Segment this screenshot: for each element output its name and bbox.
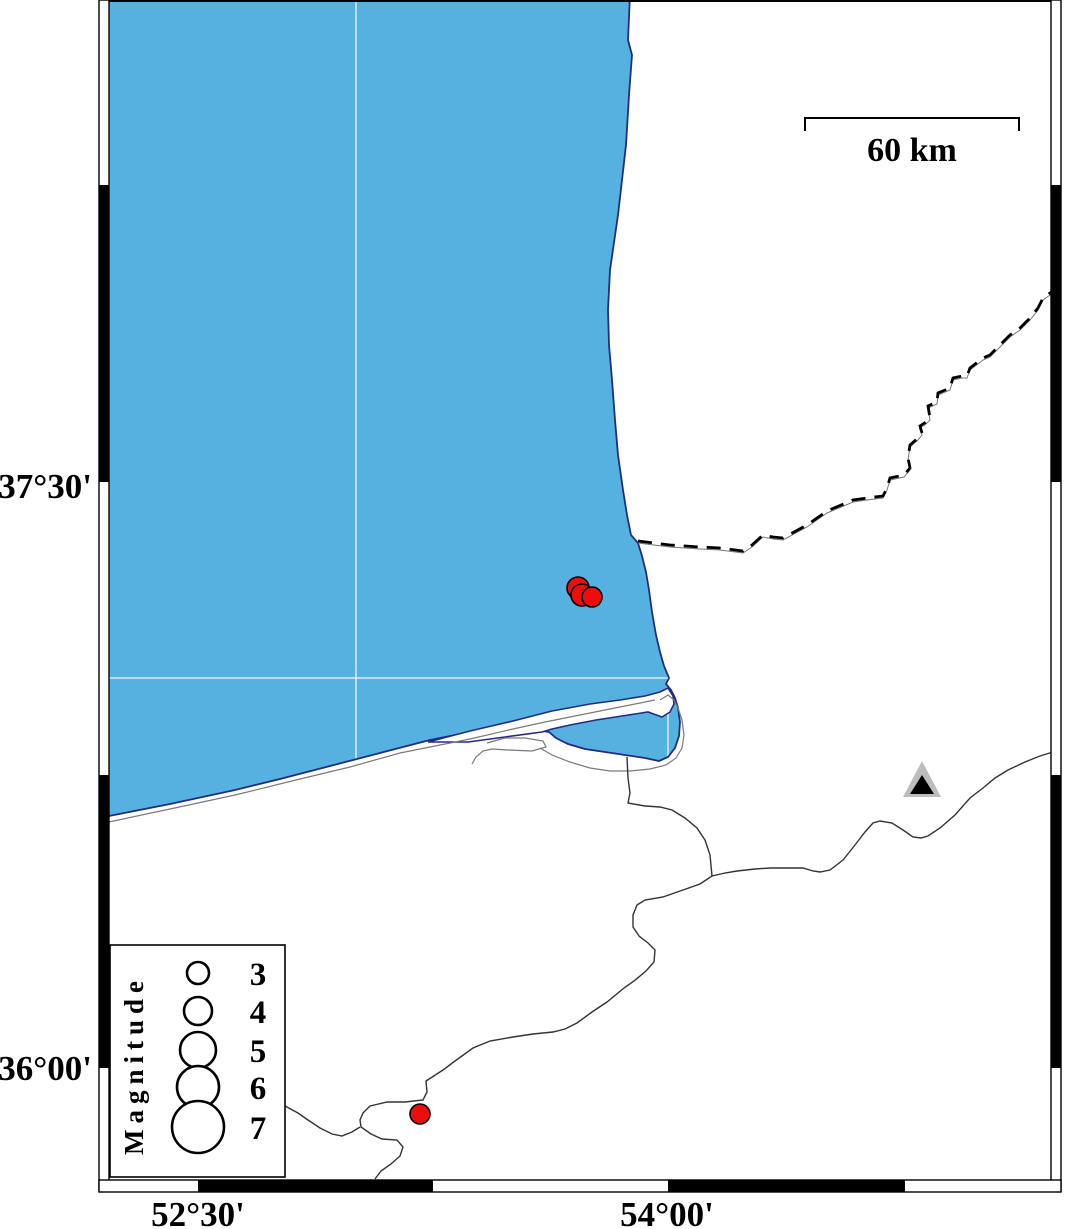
latitude-tick-label: 36°00' — [0, 1049, 92, 1088]
seismicity-map-page: 60 km Magnitude 34567 37°30'36°00' 52°30… — [0, 0, 1066, 1229]
legend-circle — [187, 962, 209, 984]
river-west-branch — [285, 1106, 360, 1136]
legend-magnitude-label: 6 — [250, 1071, 267, 1107]
sea-layer — [109, 0, 680, 816]
river-east-branch — [712, 752, 1053, 876]
magnitude-legend: Magnitude 34567 — [110, 945, 285, 1177]
legend-magnitude-label: 7 — [250, 1111, 267, 1147]
sea-polygon — [109, 0, 680, 816]
longitude-labels: 52°30'54°00' — [151, 1195, 714, 1229]
legend-magnitude-label: 5 — [250, 1034, 267, 1070]
epicenter-dot — [582, 587, 602, 607]
legend-circle — [184, 997, 212, 1025]
latitude-labels: 37°30'36°00' — [0, 467, 92, 1088]
border-line — [638, 289, 1058, 553]
rivers — [285, 752, 1053, 1179]
legend-circle — [180, 1032, 216, 1068]
legend-magnitude-label: 4 — [250, 995, 267, 1031]
epicenter-dot — [410, 1104, 430, 1124]
longitude-tick-label: 52°30' — [151, 1195, 245, 1229]
border-solid-underline — [638, 291, 1058, 553]
legend-magnitude-label: 3 — [250, 957, 267, 993]
scalebar: 60 km — [805, 118, 1019, 169]
scalebar-label: 60 km — [867, 132, 957, 169]
map-canvas: 60 km Magnitude 34567 37°30'36°00' 52°30… — [0, 0, 1066, 1229]
legend-circle — [172, 1101, 224, 1153]
legend-title: Magnitude — [119, 975, 149, 1155]
border-dashed — [638, 289, 1058, 551]
station-marker — [903, 761, 941, 797]
scalebar-line — [805, 118, 1019, 131]
longitude-tick-label: 54°00' — [620, 1195, 714, 1229]
latitude-tick-label: 37°30' — [0, 467, 92, 506]
